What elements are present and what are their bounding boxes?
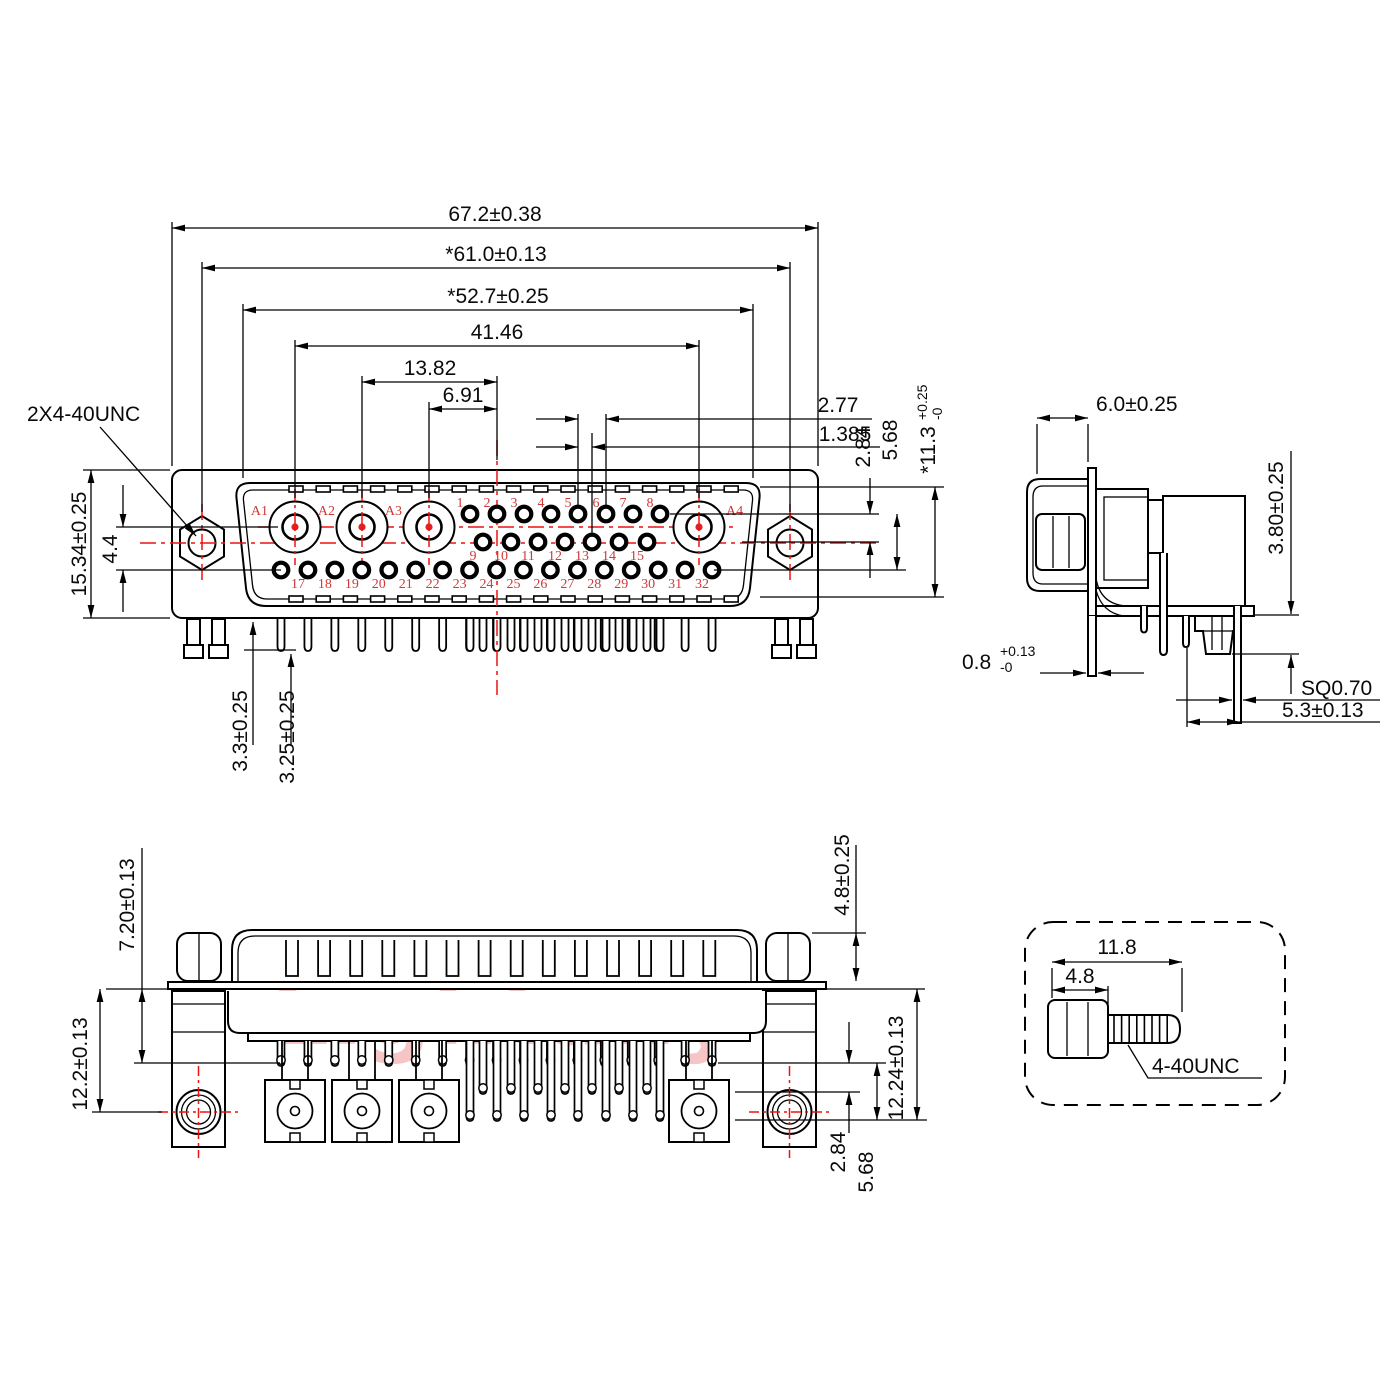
pin-label: 8	[647, 496, 654, 511]
pin-label: 25	[506, 577, 520, 592]
dim-tail-a: 3.3±0.25	[229, 690, 252, 772]
dim-nut-to-face: 7.20±0.13	[116, 858, 139, 951]
bottom-pin	[521, 1041, 528, 1121]
pin-label: 24	[480, 577, 494, 592]
pin-label: 17	[291, 577, 305, 592]
bottom-pin	[467, 1041, 474, 1121]
dim-coax-to-row: 4.4	[99, 534, 122, 564]
pin-label: 21	[399, 577, 413, 592]
bottom-insulator	[228, 991, 766, 1033]
dim-coax-pitch1: 6.91	[443, 384, 484, 407]
shell-notch	[507, 486, 521, 492]
bottom-flange	[168, 982, 826, 989]
pin	[408, 563, 423, 578]
drawing-canvas: Lightany Lightany A1A2A3A4 12345678	[0, 0, 1400, 1400]
shell-slot	[543, 940, 555, 976]
bottom-pin-end	[493, 1111, 501, 1119]
pin-label: 29	[614, 577, 628, 592]
coax-block-center	[425, 1107, 434, 1116]
pin-label: 18	[318, 577, 332, 592]
solder-tail	[589, 619, 596, 651]
solder-tail	[657, 619, 664, 651]
pin	[651, 563, 666, 578]
svg-text:+0.13: +0.13	[1000, 643, 1036, 659]
pin	[476, 535, 491, 550]
dim-pin-depth: 12.24±0.13	[885, 1016, 908, 1121]
pin-label: 5	[565, 496, 572, 511]
pin	[597, 563, 612, 578]
bottom-pin-end	[358, 1056, 366, 1064]
pin-label: 19	[345, 577, 359, 592]
bottom-pin	[630, 1041, 637, 1121]
pin	[626, 507, 641, 522]
solder-tail	[439, 619, 446, 651]
pin	[462, 563, 477, 578]
pin	[355, 563, 370, 578]
shell-notch	[534, 596, 548, 602]
shell-notch	[425, 596, 439, 602]
bottom-pin-end	[574, 1111, 582, 1119]
coax-block-center	[291, 1107, 300, 1116]
dim-screw-head: 4.8	[1065, 965, 1094, 988]
shell-notch	[343, 486, 357, 492]
pin	[516, 563, 531, 578]
pin	[543, 563, 558, 578]
bottom-pin	[575, 1041, 582, 1121]
pin-label: 32	[695, 577, 709, 592]
shell-slot	[286, 940, 298, 976]
coax-label: A3	[385, 504, 402, 519]
solder-tail	[467, 619, 474, 651]
solder-tail	[535, 619, 542, 651]
bottom-pin	[494, 1041, 501, 1121]
bottom-pin-end	[547, 1111, 555, 1119]
shell-notch	[289, 596, 303, 602]
shell-notch	[425, 486, 439, 492]
solder-tail	[644, 619, 651, 651]
coax-label: A4	[726, 504, 743, 519]
coax-block-tab	[290, 1080, 300, 1089]
shell-notch	[398, 596, 412, 602]
solder-tail	[480, 619, 487, 651]
solder-tail	[616, 619, 623, 651]
side-plate-leg	[1088, 616, 1096, 676]
dim-row-offset: 2.84	[852, 426, 875, 467]
dim-plate-thickness: 0.8 +0.13 -0	[962, 643, 1036, 675]
pin-label: 22	[426, 577, 440, 592]
front-foot-right	[772, 619, 816, 658]
pin	[558, 535, 573, 550]
pin	[544, 507, 559, 522]
pin-label: 31	[668, 577, 682, 592]
bottom-pin-end	[479, 1084, 487, 1092]
shell-notch	[724, 486, 738, 492]
side-rear-block	[1163, 496, 1245, 606]
engineering-drawing: Lightany Lightany A1A2A3A4 12345678	[0, 0, 1400, 1400]
pin	[504, 535, 519, 550]
solder-tail	[508, 619, 515, 651]
bottom-pin	[657, 1041, 664, 1121]
side-pin-round	[1160, 553, 1167, 655]
bottom-pin-end	[466, 1111, 474, 1119]
shell-notch	[343, 596, 357, 602]
pin	[571, 507, 586, 522]
solder-tail	[304, 619, 311, 651]
shell-slot	[671, 940, 683, 976]
pin-label: 4	[538, 496, 545, 511]
pin-label: 20	[372, 577, 386, 592]
shell-notch	[588, 486, 602, 492]
screw-detail: 11.8 4.8 4-40UNC	[1025, 922, 1285, 1105]
shell-slot	[318, 940, 330, 976]
front-foot-left	[184, 619, 228, 658]
svg-text:-0: -0	[1000, 659, 1013, 675]
dim-shell-height: *11.3 +0.25 -0	[914, 384, 945, 473]
solder-tail	[548, 619, 555, 651]
dim-standoff: 3.80±0.25	[1265, 461, 1288, 554]
side-step-block	[1148, 500, 1163, 553]
dim-pin-pitch: 2.77	[818, 394, 859, 417]
pin	[328, 563, 343, 578]
pin	[640, 535, 655, 550]
shell-notch	[316, 596, 330, 602]
pin-label: 23	[453, 577, 467, 592]
side-view: 6.0±0.25 3.80±0.25 0.8 +0.13 -0 SQ0.70 5…	[962, 393, 1380, 727]
pin	[570, 563, 585, 578]
shell-notch	[561, 596, 575, 602]
dim-screw-total: 11.8	[1097, 936, 1136, 959]
shell-notch	[561, 486, 575, 492]
solder-tail	[358, 619, 365, 651]
coax-label: A2	[318, 504, 335, 519]
dim-flange-width: 67.2±0.38	[448, 203, 541, 226]
solder-tail	[331, 619, 338, 651]
pin	[381, 563, 396, 578]
dim-bottom-row-span: 5.68	[855, 1152, 878, 1193]
coax-block-tab	[694, 1080, 704, 1089]
dim-pin-square: SQ0.70	[1301, 677, 1372, 700]
solder-tail	[682, 619, 689, 651]
shell-slot	[350, 940, 362, 976]
pin	[489, 563, 504, 578]
bottom-pin-end	[602, 1111, 610, 1119]
dim-nut-height: 4.8±0.25	[831, 834, 854, 916]
front-flange	[172, 470, 818, 618]
dim-depth: 6.0±0.25	[1096, 393, 1178, 416]
bottom-pin-end	[507, 1084, 515, 1092]
pin-label: 30	[641, 577, 655, 592]
shell-slot	[414, 940, 426, 976]
dim-mount-width: *61.0±0.13	[445, 243, 546, 266]
side-pin-short	[1141, 606, 1147, 633]
bottom-pin-end	[615, 1084, 623, 1092]
bottom-pin-end	[520, 1111, 528, 1119]
dim-coax-pitch2: 13.82	[404, 357, 457, 380]
pin-label: 7	[620, 496, 627, 511]
coax-block-tab	[290, 1133, 300, 1142]
shell-slot	[639, 940, 651, 976]
dim-hole-offset: 12.2±0.13	[69, 1017, 92, 1110]
pin	[585, 535, 600, 550]
shell-notch	[697, 596, 711, 602]
pin-label: 1	[457, 496, 464, 511]
side-pin-mid	[1183, 616, 1189, 647]
shell-notch	[398, 486, 412, 492]
shell-slot	[703, 940, 715, 976]
bottom-pin	[548, 1041, 555, 1121]
pin	[463, 507, 478, 522]
shell-notch	[588, 596, 602, 602]
shell-notch	[643, 596, 657, 602]
screw-head	[1048, 1000, 1108, 1058]
shell-notch	[643, 486, 657, 492]
shell-slot	[575, 940, 587, 976]
solder-tail	[278, 619, 285, 651]
solder-tail	[575, 619, 582, 651]
solder-tail	[603, 619, 610, 651]
bottom-pin-end	[534, 1084, 542, 1092]
side-flange-plate	[1088, 468, 1096, 616]
svg-text:*11.3: *11.3	[917, 426, 940, 474]
solder-tail	[521, 619, 528, 651]
shell-notch	[670, 596, 684, 602]
side-square-pin	[1234, 606, 1241, 723]
coax-block-tab	[357, 1133, 367, 1142]
dim-flange-height: 15.34±0.25	[68, 492, 91, 597]
bottom-pin-end	[331, 1056, 339, 1064]
shell-notch	[615, 596, 629, 602]
dim-shell-width: *52.7±0.25	[447, 285, 548, 308]
shell-notch	[507, 596, 521, 602]
svg-text:-0: -0	[929, 407, 945, 420]
dim-tail-b: 3.25±0.25	[276, 690, 299, 783]
shell-slot	[382, 940, 394, 976]
shell-notch	[452, 596, 466, 602]
shell-notch	[371, 596, 385, 602]
solder-tail	[385, 619, 392, 651]
bottom-pin-end	[656, 1111, 664, 1119]
coax-block-center	[358, 1107, 367, 1116]
bottom-pin-end	[385, 1056, 393, 1064]
bottom-nut-left	[177, 933, 221, 981]
coax-block-tab	[357, 1080, 367, 1089]
dim-pin-offset: 5.3±0.13	[1282, 699, 1364, 722]
coax-block-tab	[694, 1133, 704, 1142]
bottom-pin-end	[588, 1084, 596, 1092]
front-thread-label: 2X4-40UNC	[27, 403, 140, 426]
pin-label: 28	[587, 577, 601, 592]
coax-block-tab	[424, 1080, 434, 1089]
shell-notch	[289, 486, 303, 492]
pin	[653, 507, 668, 522]
pin-label: 27	[560, 577, 574, 592]
bottom-pin	[603, 1041, 610, 1121]
solder-tail	[412, 619, 419, 651]
shell-notch	[479, 596, 493, 602]
pin	[435, 563, 450, 578]
shell-notch	[371, 486, 385, 492]
bottom-pin-end	[643, 1084, 651, 1092]
dim-row-span: 5.68	[879, 420, 902, 461]
solder-tail	[630, 619, 637, 651]
pin	[301, 563, 316, 578]
pin	[624, 563, 639, 578]
pin-label: 2	[484, 496, 491, 511]
pin	[678, 563, 693, 578]
pin-label: 6	[593, 496, 600, 511]
screw-thread-label: 4-40UNC	[1152, 1055, 1240, 1078]
side-jackscrew	[1036, 514, 1085, 570]
shell-notch	[724, 596, 738, 602]
shell-slot	[607, 940, 619, 976]
solder-tail	[562, 619, 569, 651]
shell-notch	[479, 486, 493, 492]
side-bracket	[1096, 606, 1254, 616]
bottom-insulator-step	[248, 1033, 750, 1041]
svg-text:+0.25: +0.25	[914, 384, 930, 420]
pin	[490, 507, 505, 522]
shell-notch	[452, 486, 466, 492]
svg-text:0.8: 0.8	[962, 651, 991, 674]
shell-notch	[534, 486, 548, 492]
bottom-pin-end	[561, 1084, 569, 1092]
pin	[599, 507, 614, 522]
pin-label: 3	[511, 496, 518, 511]
front-view: A1A2A3A4 1234567891011121314151718192021…	[140, 440, 876, 695]
shell-notch	[615, 486, 629, 492]
shell-notch	[316, 486, 330, 492]
pin	[517, 507, 532, 522]
bottom-pin-end	[629, 1111, 637, 1119]
shell-slot	[511, 940, 523, 976]
bottom-nut-right	[766, 933, 810, 981]
solder-tail	[709, 619, 716, 651]
pin	[531, 535, 546, 550]
coax-block-tab	[424, 1133, 434, 1142]
shell-slot	[447, 940, 459, 976]
bottom-view: 7.20±0.13 12.2±0.13 4.8±0.25 12.24±0.13 …	[69, 834, 927, 1192]
shell-slot	[479, 940, 491, 976]
coax-block-center	[695, 1107, 704, 1116]
coax-label: A1	[251, 504, 268, 519]
shell-notch	[670, 486, 684, 492]
dim-bottom-row-offset: 2.84	[827, 1131, 850, 1172]
dim-coax-span: 41.46	[471, 321, 524, 344]
pin-label: 26	[533, 577, 547, 592]
pin	[612, 535, 627, 550]
